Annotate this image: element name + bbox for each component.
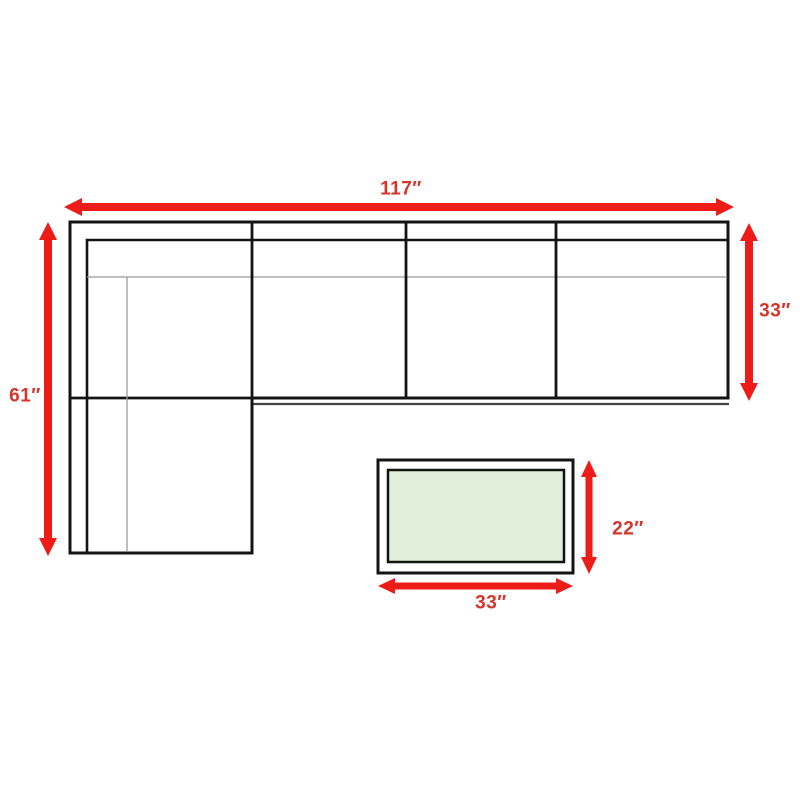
- arrow-left-head-icon: [378, 578, 395, 594]
- arrow-down-head-icon: [581, 557, 597, 574]
- arrow-right-head-icon: [716, 198, 734, 216]
- arrow-down-head-icon: [740, 383, 758, 401]
- arrow-down-head-icon: [39, 538, 57, 556]
- arrow-sofa-width: [64, 198, 734, 216]
- dimension-label-table-width: 33″: [475, 594, 507, 613]
- arrow-left-head-icon: [64, 198, 82, 216]
- dimension-diagram: [0, 0, 800, 800]
- arrow-sofa-right-depth: [740, 223, 758, 401]
- dimension-label-table-depth: 22″: [612, 520, 644, 539]
- arrow-up-head-icon: [740, 223, 758, 241]
- arrow-table-depth: [581, 460, 597, 574]
- dimension-label-sofa-right-depth: 33″: [759, 302, 791, 321]
- dimension-label-sofa-left-depth: 61″: [9, 387, 41, 406]
- coffee-table-top: [388, 470, 564, 562]
- arrow-up-head-icon: [39, 222, 57, 240]
- dimension-label-sofa-width: 117″: [380, 180, 422, 199]
- coffee-table: [378, 460, 573, 573]
- arrow-up-head-icon: [581, 460, 597, 477]
- arrow-right-head-icon: [556, 578, 573, 594]
- arrow-sofa-left-depth: [39, 222, 57, 556]
- dimension-diagram-canvas: 117″ 61″ 33″ 22″ 33″: [0, 0, 800, 800]
